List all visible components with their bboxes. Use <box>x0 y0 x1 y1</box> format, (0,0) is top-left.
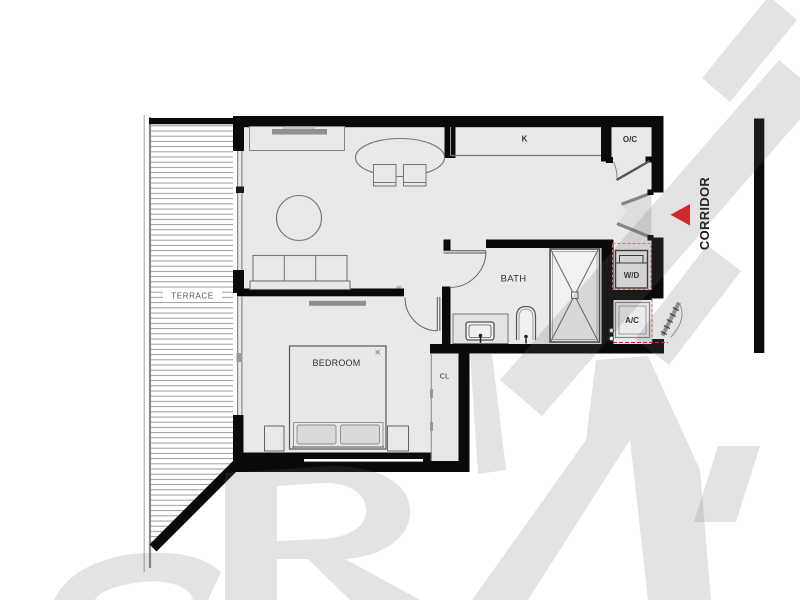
svg-text:BATH: BATH <box>501 274 527 285</box>
svg-text:BEDROOM: BEDROOM <box>313 358 361 368</box>
svg-text:TERRACE: TERRACE <box>171 292 213 301</box>
svg-text:O/C: O/C <box>623 135 637 144</box>
svg-text:CL: CL <box>440 372 450 381</box>
svg-text:K: K <box>522 135 528 144</box>
